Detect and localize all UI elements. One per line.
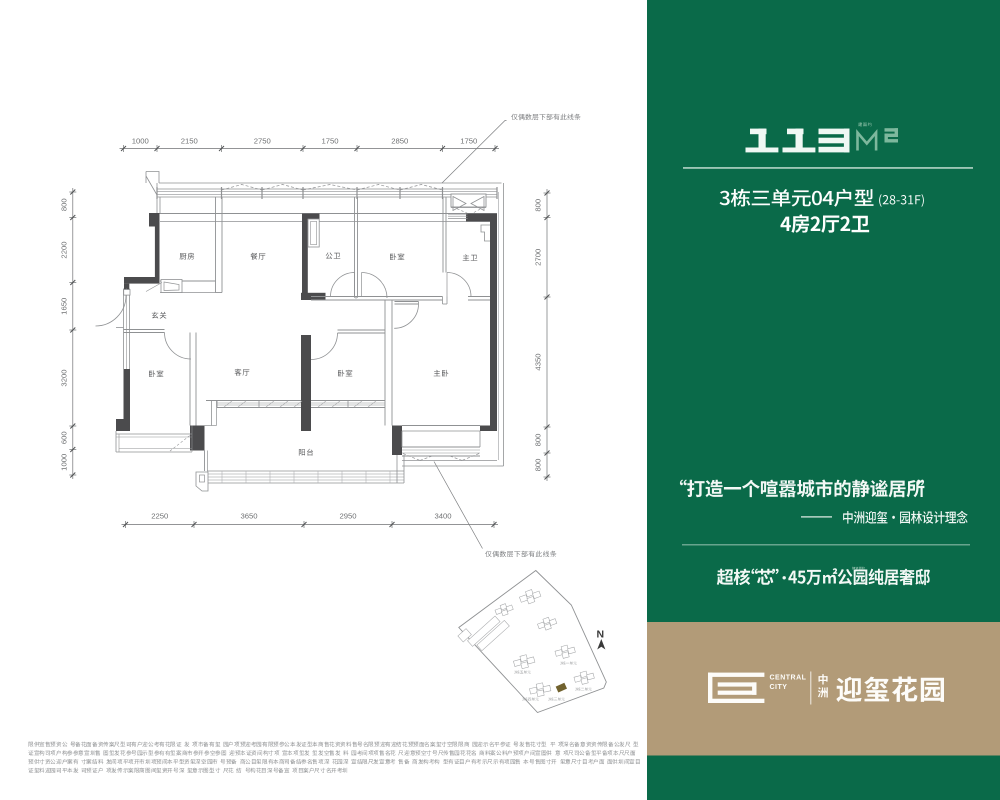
svg-text:4350: 4350 [534, 353, 543, 370]
svg-text:800: 800 [534, 459, 543, 472]
svg-text:800: 800 [534, 199, 543, 212]
svg-text:1650: 1650 [60, 298, 69, 315]
svg-text:1750: 1750 [321, 137, 338, 146]
svg-text:2750: 2750 [254, 137, 271, 146]
svg-text:2250: 2250 [151, 512, 168, 521]
svg-text:CITY: CITY [770, 684, 788, 691]
svg-text:3200: 3200 [60, 369, 69, 386]
svg-text:1000: 1000 [132, 137, 149, 146]
svg-text:N: N [597, 629, 605, 641]
svg-text:1000: 1000 [60, 454, 69, 471]
svg-text:2200: 2200 [60, 241, 69, 258]
svg-text:3400: 3400 [434, 512, 451, 521]
svg-text:800: 800 [60, 198, 69, 211]
svg-text:2850: 2850 [391, 137, 408, 146]
svg-text:2950: 2950 [339, 512, 356, 521]
svg-text:2700: 2700 [534, 249, 543, 266]
svg-text:CENTRAL: CENTRAL [770, 675, 807, 682]
svg-text:3650: 3650 [240, 512, 257, 521]
svg-text:600: 600 [60, 431, 69, 444]
svg-text:1750: 1750 [460, 137, 477, 146]
svg-text:2150: 2150 [181, 137, 198, 146]
svg-text:800: 800 [534, 434, 543, 447]
